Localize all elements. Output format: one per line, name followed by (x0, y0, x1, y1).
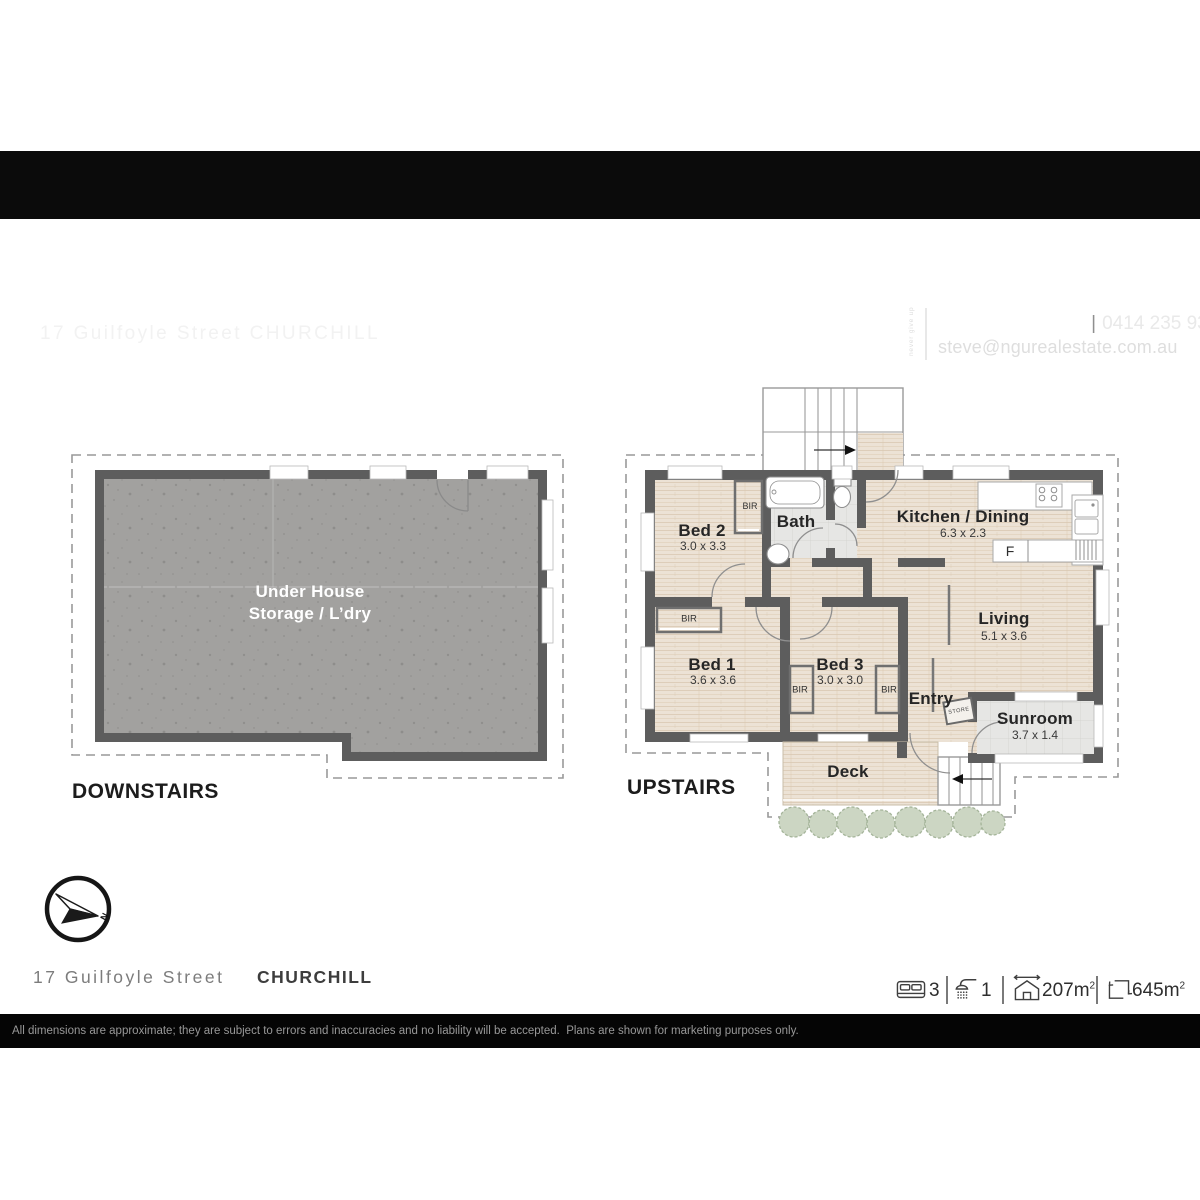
toilet-bowl (834, 487, 851, 508)
room-dims-bed2: 3.0 x 3.3 (680, 539, 726, 553)
closet-label-bed3-bir-right: BIR (881, 685, 897, 696)
land-area-value: 645m2 (1132, 980, 1185, 1002)
room-label-bath: Bath (777, 512, 816, 532)
room-label-deck: Deck (827, 762, 868, 782)
downstairs-title: DOWNSTAIRS (72, 780, 219, 804)
ngu-logo-slogan: never give up (908, 306, 915, 356)
showers-count: 1 (981, 980, 992, 1002)
bed-icon (896, 979, 926, 1000)
room-dims-kitchen-dining: 6.3 x 2.3 (940, 526, 986, 540)
shower-icon (954, 976, 980, 1002)
room-dims-bed1: 3.6 x 3.6 (690, 673, 736, 687)
house-area-icon (1011, 974, 1043, 1002)
upstairs-plan (626, 388, 1118, 838)
footer-suburb: CHURCHILL (257, 967, 373, 988)
stat-divider (1096, 976, 1098, 1004)
room-dims-bed3: 3.0 x 3.0 (817, 673, 863, 687)
top-staircase (763, 388, 903, 475)
header-divider (925, 308, 927, 360)
ngu-logo: NGU (772, 297, 907, 357)
agent-phone: 0414 235 933 (1102, 313, 1200, 334)
agent-email: steve@ngurealestate.com.au (938, 337, 1178, 358)
room-label-bed2: Bed 2 (678, 521, 725, 541)
garden-shrubs (779, 807, 1005, 838)
land-area-icon (1106, 977, 1132, 1002)
compass (47, 878, 109, 940)
house-area-value: 207m2 (1042, 980, 1095, 1002)
closet-label-bed3-bir-left: BIR (792, 685, 808, 696)
closet-label-bed1-bir: BIR (681, 614, 697, 625)
beds-count: 3 (929, 980, 940, 1002)
deck-post (897, 742, 907, 758)
stat-divider (1002, 976, 1004, 1004)
downstairs-door-gap (437, 466, 468, 479)
upstairs-title: UPSTAIRS (627, 776, 736, 800)
deck-staircase (938, 757, 1000, 805)
closet-label-bed2-bir: BIR (742, 501, 757, 511)
ngu-logo-tagline: REAL ESTATE (773, 354, 923, 366)
agent-name: Steve Athanates (938, 313, 1085, 334)
floorplan-page: 17 Guilfoyle Street CHURCHILL NGU REAL E… (0, 0, 1200, 1200)
room-dims-sunroom: 3.7 x 1.4 (1012, 728, 1058, 742)
stat-divider (946, 976, 948, 1004)
footer-street: 17 Guilfoyle Street (33, 967, 224, 988)
room-label-sunroom: Sunroom (997, 709, 1073, 729)
fridge-label: F (1006, 543, 1015, 559)
header-bar: 17 Guilfoyle Street CHURCHILL NGU REAL E… (0, 151, 1200, 219)
bath-sink (767, 544, 789, 564)
room-label-under-house: Under House Storage / L’dry (249, 581, 372, 625)
disclaimer-text: All dimensions are approximate; they are… (12, 1014, 799, 1048)
agent-separator: | (1085, 313, 1102, 334)
agent-contact-line: Steve Athanates|0414 235 933 (938, 313, 1200, 335)
header-address: 17 Guilfoyle Street CHURCHILL (40, 323, 380, 345)
room-label-entry: Entry (909, 689, 953, 709)
sink-basin-2 (1075, 519, 1098, 534)
room-label-bed3: Bed 3 (816, 655, 863, 675)
sink-basin-1 (1075, 500, 1098, 517)
entry-deck-opening (908, 732, 968, 742)
room-label-bed1: Bed 1 (688, 655, 735, 675)
room-label-kitchen-dining: Kitchen / Dining (897, 507, 1030, 527)
room-label-living: Living (978, 609, 1029, 629)
room-dims-living: 5.1 x 3.6 (981, 629, 1027, 643)
